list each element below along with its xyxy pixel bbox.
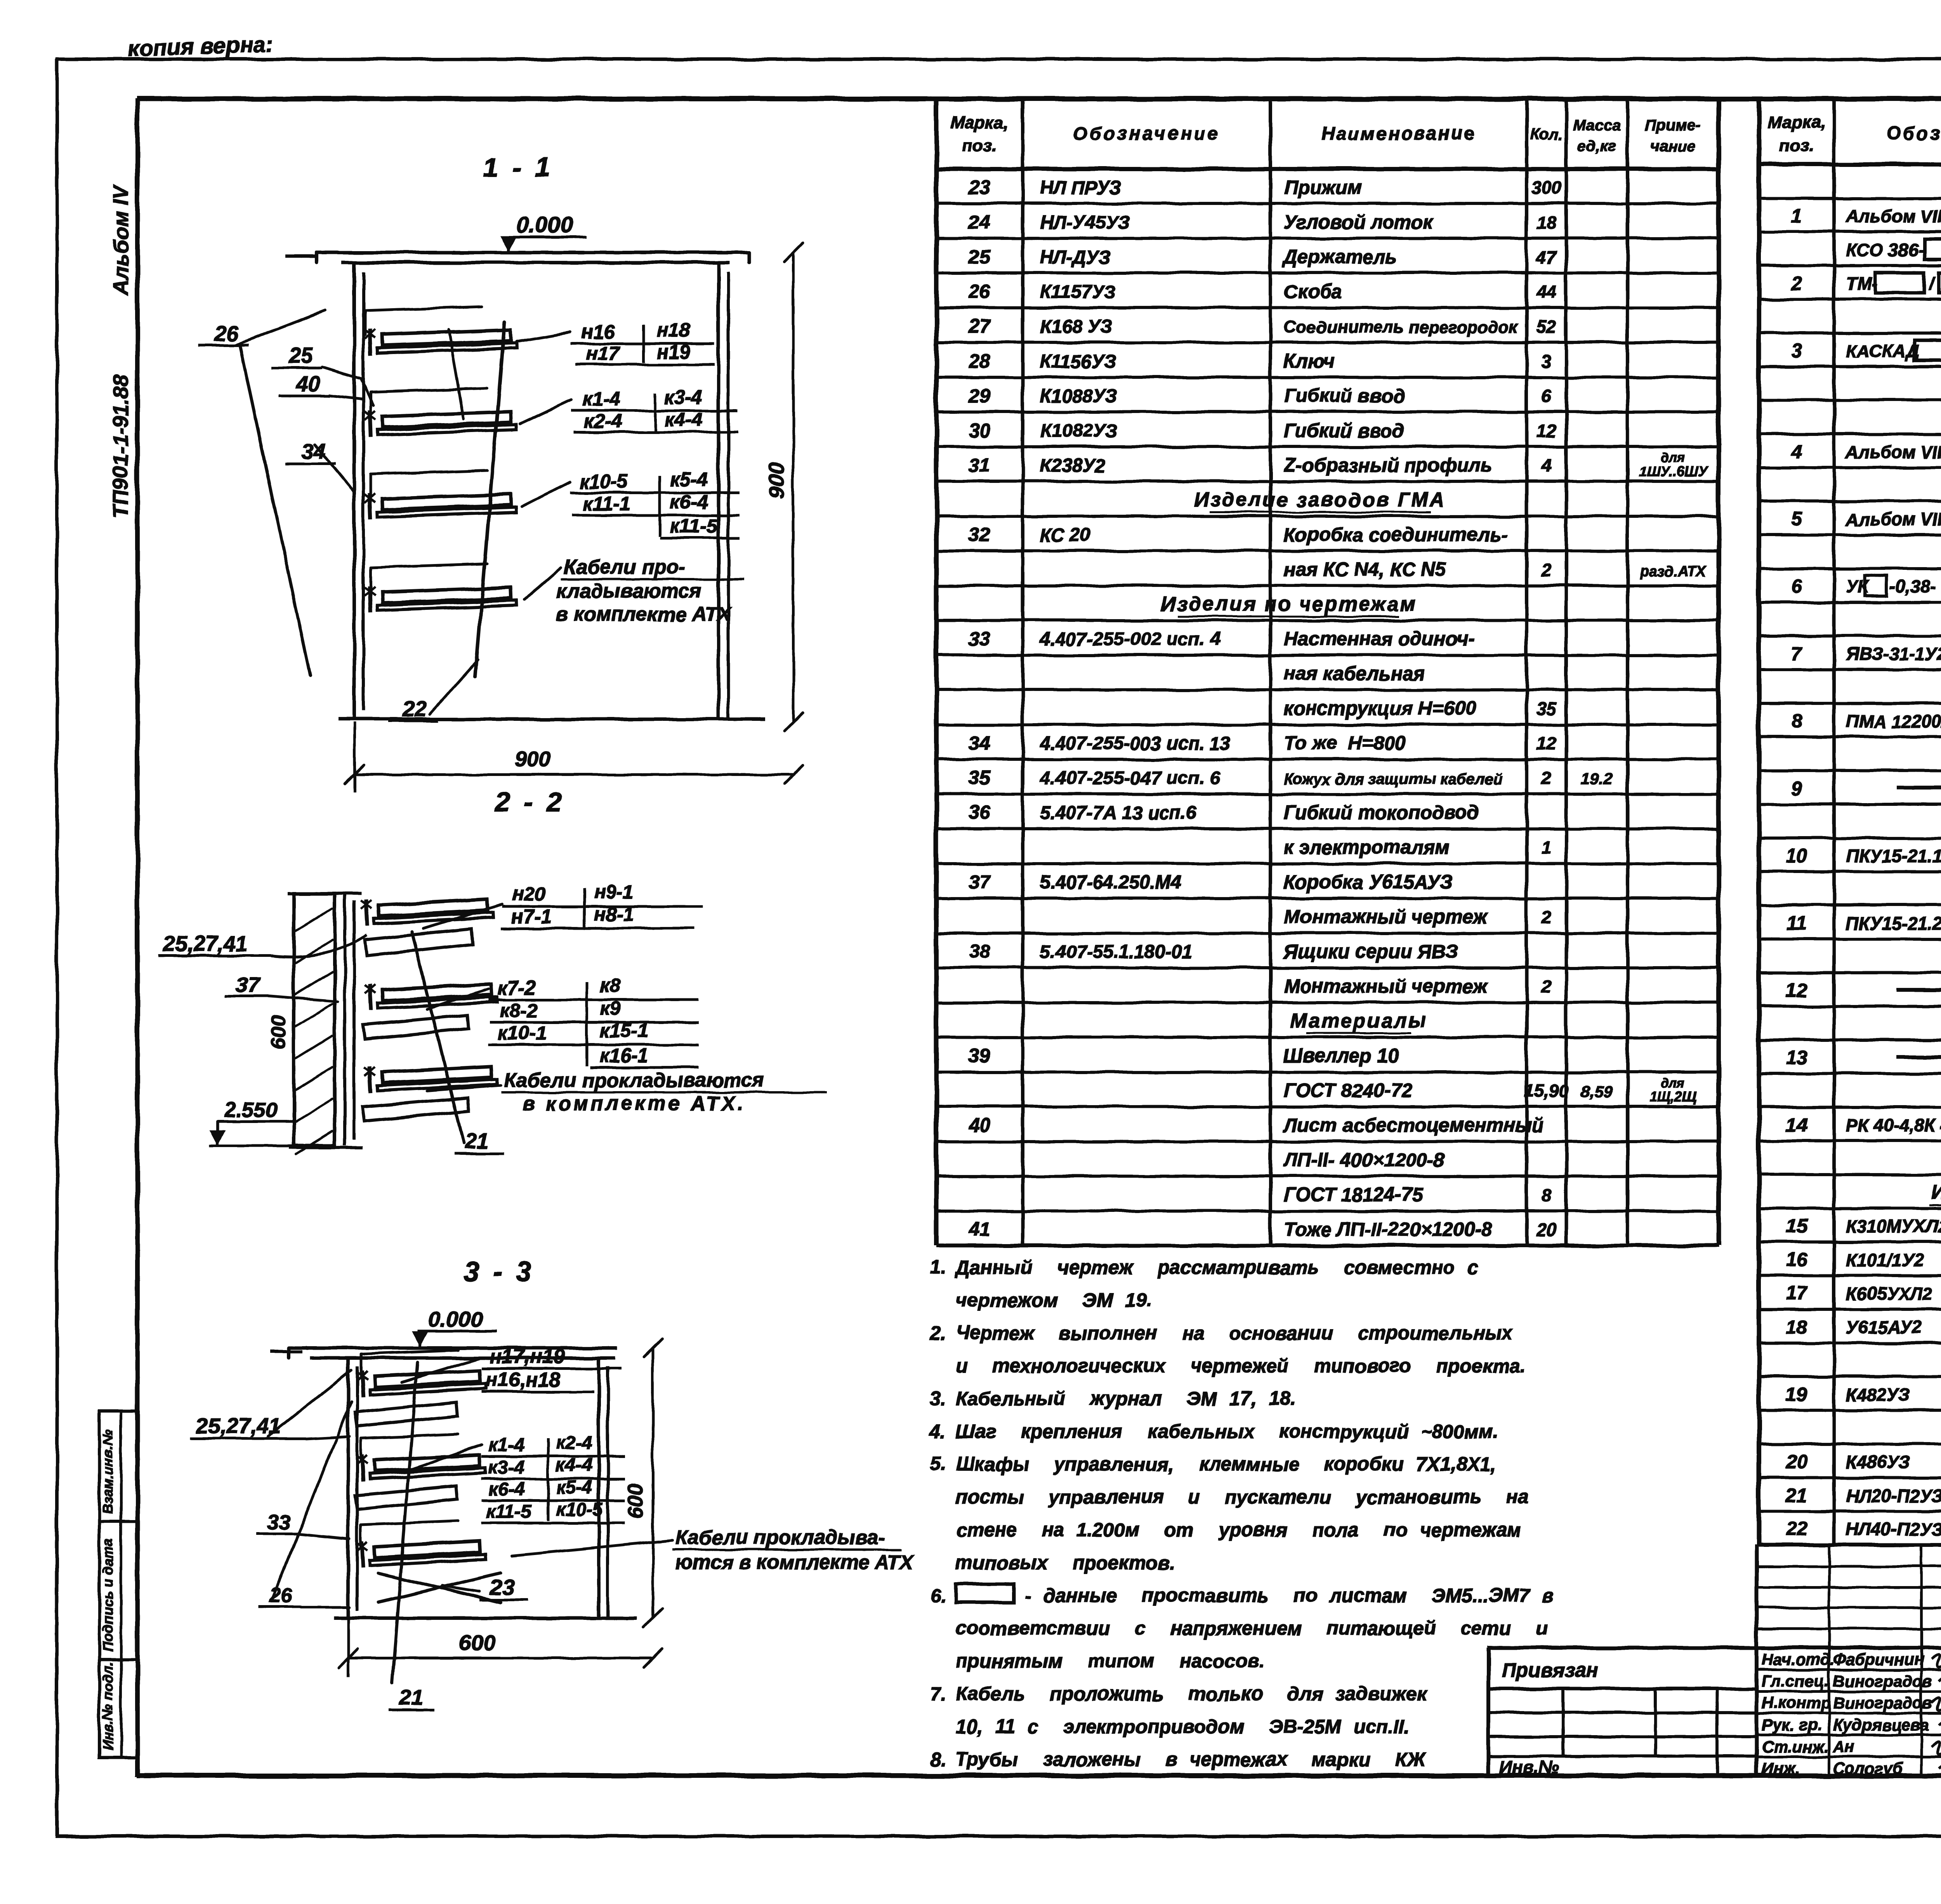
svg-text:Трубы заложены в чертежах м: Трубы заложены в чертежах марки КЖ: [956, 1749, 1426, 1770]
svg-text:Инж.: Инж.: [1762, 1759, 1800, 1777]
svg-text:к1-4: к1-4: [582, 388, 620, 410]
svg-text:2: 2: [1541, 768, 1552, 788]
svg-text:19: 19: [1786, 1383, 1807, 1405]
svg-text:к2-4: к2-4: [584, 410, 622, 432]
svg-text:41: 41: [968, 1218, 990, 1240]
svg-text:К101/1У2: К101/1У2: [1846, 1250, 1924, 1270]
svg-text:к электроталям: к электроталям: [1284, 837, 1449, 858]
svg-text:в комплекте АТХ: в комплекте АТХ: [556, 603, 732, 626]
svg-text:кладываются: кладываются: [556, 580, 702, 602]
svg-text:33: 33: [267, 1511, 290, 1534]
svg-text:5.: 5.: [930, 1453, 946, 1475]
svg-text:4.407-255-003 исп. 13: 4.407-255-003 исп. 13: [1040, 733, 1231, 754]
svg-text:24: 24: [968, 211, 990, 233]
svg-text:КСО 386-: КСО 386-: [1846, 240, 1924, 260]
svg-text:20: 20: [1536, 1220, 1557, 1240]
svg-text:Соединитель перегородок: Соединитель перегородок: [1284, 318, 1519, 337]
svg-text:ПМА 122002В: ПМА 122002В: [1846, 711, 1941, 731]
svg-text:КАСКАД: КАСКАД: [1846, 341, 1919, 361]
svg-text:Марка,: Марка,: [951, 113, 1008, 132]
svg-text:Кабель проложить только для: Кабель проложить только для задвижек: [956, 1683, 1427, 1705]
svg-text:То же Н=800: То же Н=800: [1284, 732, 1406, 754]
svg-text:стене на 1.200м от уровня: стене на 1.200м от уровня пола по чертеж…: [956, 1519, 1521, 1541]
svg-text:Сологуб: Сологуб: [1833, 1759, 1903, 1777]
svg-text:н9-1: н9-1: [594, 881, 634, 903]
svg-text:к2-4: к2-4: [556, 1432, 592, 1453]
svg-text:К310МУХЛ2: К310МУХЛ2: [1846, 1216, 1941, 1236]
svg-text:к3-4: к3-4: [488, 1457, 525, 1478]
svg-text:40: 40: [295, 371, 320, 396]
svg-text:У615АУ2: У615АУ2: [1846, 1317, 1922, 1337]
svg-text:Рук. гр.: Рук. гр.: [1762, 1716, 1822, 1734]
svg-text:РК 40-4,8К 40-4: РК 40-4,8К 40-4: [1846, 1115, 1941, 1135]
svg-text:12: 12: [1536, 421, 1557, 441]
svg-text:К1082УЗ: К1082УЗ: [1040, 421, 1117, 441]
svg-text:к16-1: к16-1: [600, 1045, 648, 1066]
svg-text:к8-2: к8-2: [500, 1000, 538, 1021]
svg-text:поз.: поз.: [1780, 136, 1814, 155]
svg-text:Тоже ЛП-II-220×1200-8: Тоже ЛП-II-220×1200-8: [1284, 1218, 1492, 1240]
svg-text:НЛ40-П2УЗ: НЛ40-П2УЗ: [1846, 1519, 1941, 1540]
svg-text:38: 38: [969, 941, 990, 962]
svg-text:н16: н16: [582, 321, 615, 343]
svg-text:2: 2: [1791, 272, 1802, 294]
svg-text:Изделия по чертежам: Изделия по чертежам: [1161, 593, 1417, 615]
svg-text:Изделия заводов ГЭМ: Изделия заводов ГЭМ: [1932, 1181, 1941, 1203]
svg-text:ПКУ15-21.141-40УЗ: ПКУ15-21.141-40УЗ: [1846, 846, 1941, 866]
svg-text:н18: н18: [657, 319, 690, 341]
svg-text:К1157УЗ: К1157УЗ: [1040, 282, 1116, 302]
svg-text:8: 8: [1791, 710, 1802, 732]
svg-text:к4-4: к4-4: [556, 1455, 592, 1475]
svg-text:Марка,: Марка,: [1768, 113, 1825, 132]
svg-text:Шкафы управления, клеммные: Шкафы управления, клеммные коробки 7Х1,8…: [956, 1453, 1496, 1475]
svg-text:Обозначение: Обозначение: [1886, 123, 1941, 144]
svg-text:принятым типом насосов.: принятым типом насосов.: [956, 1650, 1264, 1672]
svg-text:чание: чание: [1650, 138, 1695, 155]
svg-text:к10-5: к10-5: [556, 1500, 603, 1520]
svg-text:30: 30: [969, 420, 990, 441]
svg-text:25,27,41: 25,27,41: [163, 931, 248, 956]
svg-text:к10-5: к10-5: [579, 471, 628, 493]
svg-text:17: 17: [1786, 1283, 1808, 1304]
svg-text:28: 28: [968, 350, 990, 372]
svg-text:26: 26: [968, 281, 991, 302]
svg-text:Лист асбестоцементный: Лист асбестоцементный: [1283, 1114, 1543, 1136]
svg-text:Кабели прокладываются: Кабели прокладываются: [504, 1069, 764, 1092]
svg-text:к9: к9: [600, 998, 620, 1019]
svg-text:35: 35: [969, 767, 991, 789]
svg-text:к5-4: к5-4: [556, 1477, 592, 1498]
svg-text:и технологических чертежей: и технологических чертежей типового прое…: [956, 1355, 1526, 1377]
svg-text:20: 20: [1785, 1451, 1807, 1472]
svg-text:к8: к8: [600, 975, 620, 996]
svg-text:Коробка У615АУЗ: Коробка У615АУЗ: [1284, 871, 1453, 893]
svg-text:посты управления и пускател: посты управления и пускатели установить …: [956, 1486, 1529, 1508]
svg-text:4.407-255-002 исп. 4: 4.407-255-002 исп. 4: [1040, 629, 1220, 650]
svg-text:КС 20: КС 20: [1040, 525, 1091, 545]
svg-text:Настенная одиноч-: Настенная одиноч-: [1284, 628, 1474, 650]
svg-text:поз.: поз.: [962, 136, 997, 155]
svg-text:Обозначение: Обозначение: [1073, 123, 1220, 144]
svg-text:14: 14: [1786, 1114, 1807, 1136]
svg-text:Альбом VII.1 ЭМ33U2-3: Альбом VII.1 ЭМ33U2-3: [1846, 442, 1941, 462]
svg-text:Н.контр: Н.контр: [1762, 1694, 1830, 1712]
svg-text:34: 34: [969, 732, 990, 754]
svg-text:600: 600: [459, 1631, 495, 1655]
svg-text:ются в комплекте АТХ: ются в комплекте АТХ: [675, 1551, 915, 1574]
svg-text:2: 2: [1541, 907, 1552, 927]
svg-text:37: 37: [236, 973, 260, 996]
svg-text:ная КС N4, КС N5: ная КС N4, КС N5: [1284, 559, 1446, 580]
svg-text:5: 5: [1791, 508, 1802, 530]
svg-text:НЛ-ДУЗ: НЛ-ДУЗ: [1040, 247, 1110, 267]
svg-text:0.000: 0.000: [428, 1307, 482, 1331]
svg-text:4.407-255-047 исп. 6: 4.407-255-047 исп. 6: [1040, 768, 1221, 789]
svg-text:900: 900: [764, 463, 789, 499]
svg-text:Монтажный чертеж: Монтажный чертеж: [1284, 975, 1488, 997]
svg-text:К605УХЛ2: К605УХЛ2: [1846, 1284, 1933, 1304]
svg-text:Взам.инв.№: Взам.инв.№: [100, 1429, 116, 1514]
svg-text:Приме-: Приме-: [1645, 116, 1701, 134]
svg-text:н7-1: н7-1: [512, 906, 551, 927]
svg-text:26: 26: [214, 321, 239, 345]
svg-text:16: 16: [1786, 1249, 1808, 1270]
svg-text:Кожух для защиты кабелей: Кожух для защиты кабелей: [1284, 771, 1503, 788]
svg-text:Наименование: Наименование: [1321, 123, 1476, 144]
svg-text:Кудрявцева: Кудрявцева: [1833, 1716, 1929, 1734]
svg-text:к6-4: к6-4: [488, 1479, 525, 1500]
svg-text:н16,н18: н16,н18: [485, 1369, 560, 1391]
svg-text:1 - 1: 1 - 1: [483, 152, 553, 182]
svg-text:1ШУ..6ШУ: 1ШУ..6ШУ: [1639, 463, 1708, 479]
svg-text:Кол.: Кол.: [1530, 126, 1563, 143]
svg-text:22: 22: [402, 696, 427, 721]
svg-text:1: 1: [1791, 205, 1802, 227]
svg-text:2 - 2: 2 - 2: [494, 787, 565, 817]
svg-text:Альбом VII.1 ЭМ.33Ш-1: Альбом VII.1 ЭМ.33Ш-1: [1846, 206, 1941, 226]
svg-text:Альбом VII.1 ЭМ33U2-7: Альбом VII.1 ЭМ33U2-7: [1846, 509, 1941, 529]
svg-text:33: 33: [969, 628, 990, 650]
svg-text:18: 18: [1786, 1316, 1807, 1338]
svg-text:ЛП-II- 400×1200-8: ЛП-II- 400×1200-8: [1283, 1149, 1444, 1171]
svg-text:7.: 7.: [930, 1683, 946, 1705]
svg-text:600: 600: [267, 1015, 290, 1049]
svg-text:40: 40: [968, 1114, 990, 1136]
svg-text:4: 4: [1541, 455, 1552, 476]
svg-text:600: 600: [624, 1484, 647, 1519]
svg-text:ГОСТ 18124-75: ГОСТ 18124-75: [1284, 1184, 1424, 1205]
svg-text:Держатель: Держатель: [1282, 246, 1397, 267]
svg-text:НЛ-У45УЗ: НЛ-У45УЗ: [1040, 212, 1130, 233]
svg-text:к3-4: к3-4: [665, 386, 703, 408]
svg-text:НЛ ПРУЗ: НЛ ПРУЗ: [1040, 177, 1121, 198]
svg-text:23: 23: [490, 1575, 514, 1599]
svg-text:5.407-55.1.180-01: 5.407-55.1.180-01: [1040, 942, 1192, 962]
svg-text:Данный чертеж рассматривать: Данный чертеж рассматривать совместно с: [954, 1257, 1478, 1278]
svg-text:Фабричнин: Фабричнин: [1833, 1650, 1924, 1668]
svg-text:к11-5: к11-5: [486, 1501, 532, 1522]
svg-text:ТМ-: ТМ-: [1846, 274, 1878, 294]
svg-text:3: 3: [1542, 351, 1552, 371]
svg-text:6: 6: [1542, 386, 1552, 406]
svg-text:5.407-7А 13 исп.6: 5.407-7А 13 исп.6: [1040, 803, 1196, 823]
svg-text:н20: н20: [512, 883, 546, 905]
svg-text:3 - 3: 3 - 3: [464, 1257, 534, 1287]
svg-text:8: 8: [1542, 1185, 1552, 1205]
svg-text:2.: 2.: [929, 1322, 946, 1344]
svg-text:300: 300: [1531, 177, 1561, 198]
svg-text:6: 6: [1791, 575, 1802, 597]
svg-text:3.: 3.: [930, 1388, 946, 1409]
svg-text:47: 47: [1536, 247, 1557, 267]
svg-text:-0,38-: -0,38-: [1889, 576, 1936, 597]
svg-text:52: 52: [1536, 316, 1557, 337]
svg-text:Ящики серии ЯВЗ: Ящики серии ЯВЗ: [1283, 941, 1458, 962]
svg-text:ТП901-1-91.88: ТП901-1-91.88: [109, 375, 133, 518]
svg-text:Коробка соединитель-: Коробка соединитель-: [1284, 524, 1508, 545]
svg-text:Кабели прокладыва-: Кабели прокладыва-: [675, 1526, 885, 1549]
svg-text:3: 3: [1791, 340, 1802, 361]
svg-text:К486УЗ: К486УЗ: [1846, 1452, 1910, 1472]
svg-text:Привязан: Привязан: [1502, 1659, 1598, 1682]
svg-text:Нач.отд.: Нач.отд.: [1762, 1650, 1835, 1668]
svg-text:ГОСТ 8240-72: ГОСТ 8240-72: [1284, 1080, 1412, 1101]
svg-text:21: 21: [465, 1128, 489, 1153]
svg-text:12: 12: [1536, 733, 1557, 753]
svg-text:18: 18: [1536, 212, 1557, 233]
svg-text:2.550: 2.550: [224, 1099, 277, 1122]
svg-text:15,90: 15,90: [1524, 1081, 1569, 1101]
svg-text:Ан: Ан: [1833, 1737, 1855, 1756]
svg-text:21: 21: [399, 1685, 423, 1710]
svg-text:типовых проектов.: типовых проектов.: [956, 1552, 1175, 1574]
svg-text:22: 22: [1785, 1518, 1807, 1540]
svg-text:Шаг крепления кабельных кон: Шаг крепления кабельных конструкций ~800…: [956, 1421, 1499, 1442]
svg-text:к10-1: к10-1: [498, 1022, 546, 1044]
svg-text:8.: 8.: [930, 1749, 946, 1770]
svg-text:4: 4: [1791, 441, 1802, 462]
svg-text:НЛ20-П2УЗ: НЛ20-П2УЗ: [1846, 1486, 1941, 1506]
svg-text:27: 27: [968, 315, 991, 337]
svg-text:7: 7: [1791, 643, 1803, 665]
svg-text:К238У2: К238У2: [1040, 455, 1106, 476]
svg-text:Гибкий ввод: Гибкий ввод: [1284, 385, 1405, 406]
svg-text:Монтажный чертеж: Монтажный чертеж: [1284, 906, 1488, 928]
svg-text:0.000: 0.000: [516, 213, 573, 238]
svg-text:1.: 1.: [930, 1257, 946, 1278]
svg-text:- данные проставить по листа: - данные проставить по листам ЭМ5...ЭМ7 …: [1025, 1585, 1554, 1606]
svg-text:н17: н17: [586, 343, 620, 364]
svg-text:к11-5: к11-5: [670, 515, 718, 537]
svg-text:Скоба: Скоба: [1284, 281, 1342, 302]
svg-text:к4-4: к4-4: [665, 409, 703, 430]
svg-text:9: 9: [1791, 778, 1802, 799]
svg-text:4.: 4.: [929, 1421, 946, 1442]
svg-text:Масса: Масса: [1573, 116, 1621, 134]
svg-text:К168 УЗ: К168 УЗ: [1040, 316, 1112, 337]
svg-text:32: 32: [969, 524, 990, 545]
svg-text:Кабели про-: Кабели про-: [564, 556, 686, 578]
svg-text:Гибкий токоподвод: Гибкий токоподвод: [1284, 802, 1479, 823]
svg-text:Подпись и дата: Подпись и дата: [100, 1538, 116, 1652]
svg-text:13: 13: [1786, 1047, 1807, 1068]
svg-text:н19: н19: [657, 341, 690, 363]
svg-text:ед,кг: ед,кг: [1577, 138, 1616, 155]
svg-text:11: 11: [1786, 912, 1807, 934]
svg-text:6.: 6.: [930, 1585, 946, 1606]
svg-text:ПКУ15-21.231-40УЗ: ПКУ15-21.231-40УЗ: [1846, 913, 1941, 934]
svg-text:1Щ,2Щ: 1Щ,2Щ: [1649, 1089, 1697, 1105]
svg-text:н17,н19: н17,н19: [490, 1345, 565, 1368]
svg-text:31: 31: [969, 454, 990, 476]
svg-text:39: 39: [969, 1045, 990, 1067]
svg-text:5.407-64.250.М4: 5.407-64.250.М4: [1040, 872, 1181, 893]
svg-text:Альбом IV: Альбом IV: [109, 184, 133, 296]
svg-text:Z-образный профиль: Z-образный профиль: [1283, 454, 1492, 476]
svg-text:15: 15: [1786, 1215, 1808, 1237]
svg-text:разд.АТХ: разд.АТХ: [1640, 563, 1707, 580]
svg-text:29: 29: [968, 385, 990, 406]
svg-text:21: 21: [1785, 1484, 1807, 1506]
svg-text:Кабельный журнал ЭМ 17, 18.: Кабельный журнал ЭМ 17, 18.: [956, 1388, 1296, 1409]
svg-text:чертежом ЭМ 19.: чертежом ЭМ 19.: [956, 1290, 1152, 1311]
svg-text:Инв.№ подл.: Инв.№ подл.: [100, 1662, 116, 1751]
svg-text:2: 2: [1541, 560, 1552, 580]
svg-text:8,59: 8,59: [1581, 1082, 1613, 1100]
svg-text:к7-2: к7-2: [498, 977, 536, 999]
svg-text:К1088УЗ: К1088УЗ: [1040, 386, 1117, 406]
svg-text:Виноградов: Виноградов: [1833, 1694, 1932, 1712]
svg-text:19.2: 19.2: [1581, 770, 1613, 788]
svg-text:37: 37: [969, 871, 991, 893]
svg-text:конструкция Н=600: конструкция Н=600: [1284, 698, 1476, 719]
svg-text:к6-4: к6-4: [670, 491, 708, 513]
svg-text:900: 900: [515, 747, 551, 771]
svg-text:Угловой лоток: Угловой лоток: [1284, 211, 1434, 233]
svg-text:Ст.инж.: Ст.инж.: [1762, 1737, 1828, 1756]
svg-text:к15-1: к15-1: [600, 1020, 648, 1041]
svg-text:Инв.№: Инв.№: [1499, 1757, 1559, 1777]
svg-text:10, 11 с электроприводом ЭВ-: 10, 11 с электроприводом ЭВ-25М исп.II.: [956, 1716, 1410, 1737]
svg-text:К482УЗ: К482УЗ: [1846, 1385, 1910, 1405]
svg-text:Изделие заводов ГМА: Изделие заводов ГМА: [1194, 489, 1446, 511]
svg-text:Гл.спец.: Гл.спец.: [1762, 1672, 1829, 1690]
svg-text:25: 25: [288, 343, 313, 368]
svg-text:соответствии с напряжением: соответствии с напряжением питающей сети…: [956, 1618, 1547, 1639]
svg-text:н8-1: н8-1: [594, 903, 634, 925]
svg-text:1: 1: [1542, 838, 1552, 858]
svg-text:35: 35: [1536, 699, 1557, 719]
svg-text:23: 23: [968, 176, 990, 198]
svg-text:25,27,41: 25,27,41: [196, 1413, 281, 1438]
svg-text:Ключ: Ключ: [1284, 350, 1335, 372]
svg-text:Швеллер 10: Швеллер 10: [1284, 1045, 1399, 1067]
svg-text:Материалы: Материалы: [1290, 1010, 1427, 1032]
svg-text:к11-1: к11-1: [583, 493, 630, 515]
svg-text:36: 36: [969, 802, 991, 823]
svg-text:К1156УЗ: К1156УЗ: [1040, 351, 1116, 372]
svg-text:Чертеж выполнен на основани: Чертеж выполнен на основании строительны…: [956, 1322, 1513, 1344]
svg-text:ная кабельная: ная кабельная: [1284, 663, 1425, 684]
svg-text:в комплекте АТХ.: в комплекте АТХ.: [522, 1092, 745, 1115]
svg-text:Виноградов: Виноградов: [1833, 1672, 1932, 1690]
svg-text:10: 10: [1786, 845, 1807, 866]
svg-text:12: 12: [1786, 979, 1807, 1001]
svg-text:25: 25: [968, 246, 991, 267]
svg-text:Прижим: Прижим: [1284, 176, 1362, 198]
svg-text:к5-4: к5-4: [670, 469, 708, 490]
svg-text:44: 44: [1536, 282, 1556, 302]
svg-text:2: 2: [1541, 977, 1552, 997]
svg-text:ЯВЗ-31-1У2: ЯВЗ-31-1У2: [1846, 644, 1941, 664]
svg-text:копия верна:: копия верна:: [128, 31, 274, 61]
svg-text:Гибкий ввод: Гибкий ввод: [1284, 420, 1405, 441]
svg-text:к1-4: к1-4: [488, 1435, 525, 1455]
